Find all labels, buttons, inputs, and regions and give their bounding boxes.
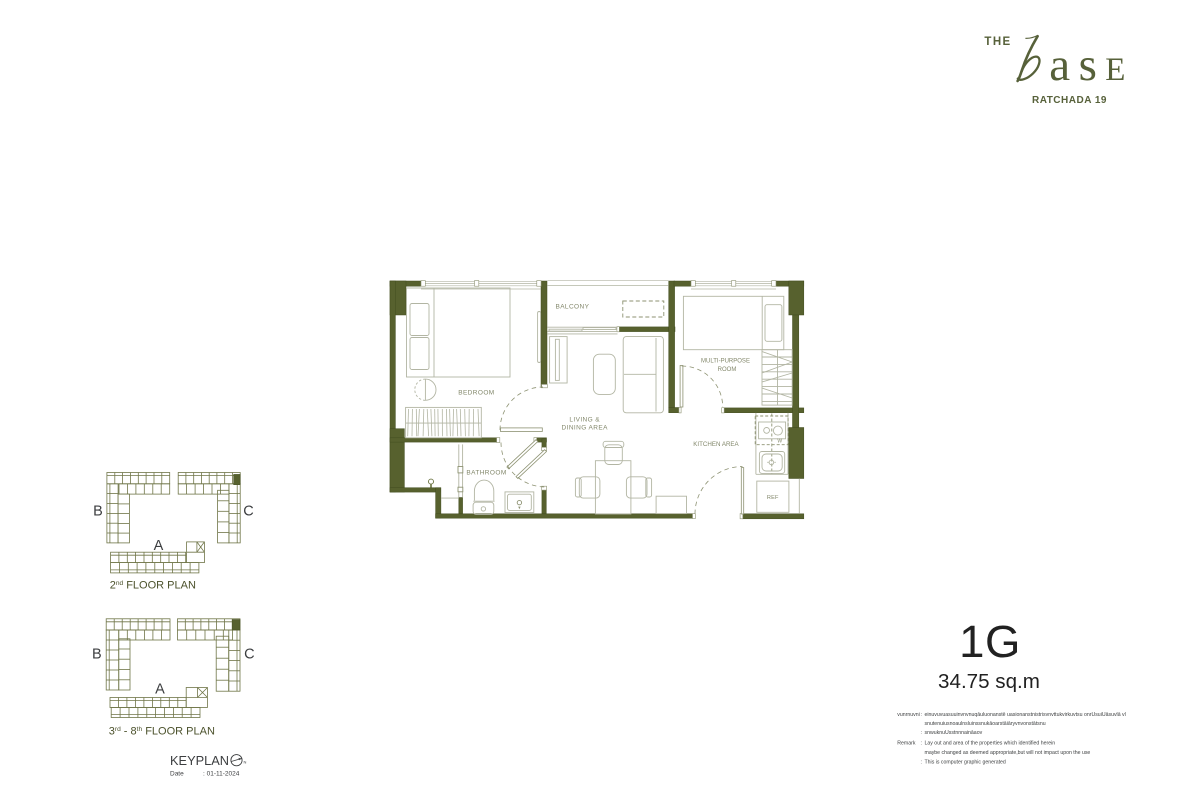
svg-text:KEYPLAN: KEYPLAN bbox=[170, 753, 229, 768]
svg-text:B: B bbox=[93, 503, 103, 519]
svg-text:RATCHADA 19: RATCHADA 19 bbox=[1032, 95, 1107, 106]
svg-text:vunrnuvni: vunrnuvni bbox=[897, 712, 920, 718]
svg-text:DINING AREA: DINING AREA bbox=[562, 424, 609, 431]
svg-text::: : bbox=[921, 760, 922, 766]
svg-text::: : bbox=[921, 730, 922, 736]
svg-text:BEDROOM: BEDROOM bbox=[458, 390, 494, 397]
svg-text:snwuknuUsstnnnaināaov: snwuknuUsstnnnaināaov bbox=[925, 730, 983, 736]
svg-text:2nd FLOOR PLAN: 2nd FLOOR PLAN bbox=[110, 580, 196, 592]
svg-text:34.75 sq.m: 34.75 sq.m bbox=[938, 670, 1040, 693]
svg-text:maybe changed as deemed approp: maybe changed as deemed appropriate,but … bbox=[925, 750, 1091, 756]
svg-text:1G: 1G bbox=[959, 616, 1021, 667]
svg-text:a: a bbox=[1049, 39, 1070, 91]
svg-text:: 01-11-2024: : 01-11-2024 bbox=[203, 771, 240, 778]
svg-text:W: W bbox=[777, 439, 782, 445]
svg-text:A: A bbox=[155, 681, 165, 697]
svg-text:This is computer graphic gener: This is computer graphic generated bbox=[925, 760, 1006, 766]
svg-text:E: E bbox=[1105, 52, 1125, 88]
svg-text:N: N bbox=[244, 760, 247, 765]
svg-text:Remark: Remark bbox=[897, 741, 916, 747]
svg-text:A: A bbox=[154, 538, 164, 554]
svg-text::: : bbox=[921, 741, 922, 747]
svg-text:ROOM: ROOM bbox=[718, 367, 737, 373]
svg-text:s: s bbox=[1079, 39, 1097, 91]
svg-text:Date: Date bbox=[170, 771, 184, 778]
svg-text:BATHROOM: BATHROOM bbox=[466, 470, 506, 477]
svg-text:BALCONY: BALCONY bbox=[555, 303, 589, 310]
svg-text:KITCHEN AREA: KITCHEN AREA bbox=[693, 441, 739, 448]
svg-text:C: C bbox=[244, 646, 254, 662]
svg-text:REF: REF bbox=[767, 495, 779, 501]
svg-text:B: B bbox=[92, 646, 102, 662]
svg-text:C: C bbox=[243, 503, 253, 519]
svg-text:einuvuvuasuuinvnvnuqāuluonanst: einuvuvuasuuinvnvnuqāuluonanstē uasionan… bbox=[925, 712, 1126, 718]
svg-text::: : bbox=[921, 712, 922, 718]
svg-text:THE: THE bbox=[984, 36, 1011, 48]
svg-text:snutenuiusnoaulnsluinssnukāoar: snutenuiusnoaulnsluinssnukāoarstāiāryvnv… bbox=[925, 721, 1046, 727]
svg-text:MULTI-PURPOSE: MULTI-PURPOSE bbox=[701, 359, 750, 365]
svg-text:3rd - 8th FLOOR PLAN: 3rd - 8th FLOOR PLAN bbox=[109, 726, 215, 738]
svg-text:Lay out and area of the proper: Lay out and area of the properties which… bbox=[925, 741, 1056, 747]
svg-text:LIVING &: LIVING & bbox=[569, 416, 600, 423]
